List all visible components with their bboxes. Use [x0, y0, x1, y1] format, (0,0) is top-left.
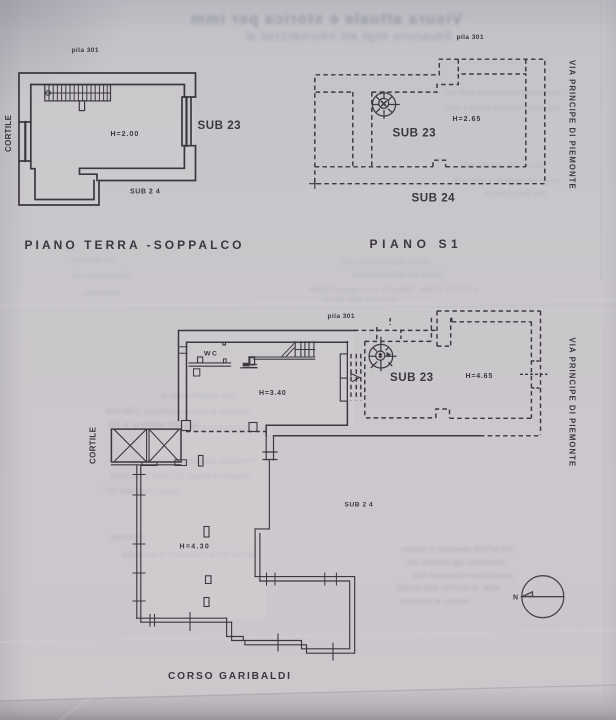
svg-text:aaimmo bili e docum enti simil: aaimmo bili e docum enti simili del — [446, 88, 560, 97]
svg-text:piano terra: piano terra — [83, 288, 120, 297]
svg-text:pila 301: pila 301 — [72, 47, 99, 54]
svg-text:elenco degli immobili e del: elenco degli immobili e del — [342, 257, 430, 266]
svg-text:dati della richiesta: dati della richiesta — [484, 189, 545, 198]
svg-text:catasto dei fabbricati urbani: catasto dei fabbricati urbani — [353, 270, 445, 279]
svg-text:pila 301: pila 301 — [457, 34, 484, 41]
svg-text:H=4.30: H=4.30 — [180, 543, 211, 550]
svg-text:CORTILE: CORTILE — [4, 114, 13, 152]
svg-text:H=4.65: H=4.65 — [466, 373, 494, 380]
svg-text:N: N — [513, 595, 518, 602]
svg-text:WC: WC — [204, 351, 219, 358]
svg-text:CORSO GARIBALDI: CORSO GARIBALDI — [168, 671, 292, 682]
svg-text:pila 301: pila 301 — [328, 313, 355, 320]
svg-text:SUB 2 4: SUB 2 4 — [130, 189, 160, 196]
svg-text:AMIL SFIENTIBI ANA DIONE: AMIL SFIENTIBI ANA DIONE — [396, 584, 500, 593]
svg-text:Visura attuale e storica per i: Visura attuale e storica per imm — [190, 11, 462, 28]
svg-text:9 19 BUS 10 M31, Tilbfecche 3: 9 19 BUS 10 M31, Tilbfecche 3 to 1 appea… — [310, 285, 478, 294]
svg-text:SUB 23: SUB 23 — [393, 127, 437, 140]
svg-text:M Diresid: M Diresid — [111, 533, 145, 542]
svg-text:H=2.00: H=2.00 — [111, 131, 140, 138]
svg-text:SUB 24: SUB 24 — [412, 192, 456, 205]
svg-text:SUB 23: SUB 23 — [390, 371, 434, 384]
svg-text:Situazione degli atti informat: Situazione degli atti informatizzati al — [246, 31, 452, 43]
svg-text:piano primo sotterraneo dire: piano primo sotterraneo dire — [412, 571, 513, 580]
svg-text:H=3.40: H=3.40 — [259, 390, 287, 397]
svg-text:SUB 23: SUB 23 — [198, 119, 242, 132]
svg-text:situazione degli atti inf: situazione degli atti inf — [323, 295, 398, 304]
svg-text:VIA APION stenosfiel al chiest: VIA APION stenosfiel al chiesto — [401, 545, 513, 554]
svg-text:PIANO S1: PIANO S1 — [370, 237, 463, 251]
svg-text:H=2.65: H=2.65 — [453, 116, 482, 123]
svg-text:CORTILE: CORTILE — [88, 426, 97, 464]
svg-text:SUB 2 4: SUB 2 4 — [345, 502, 374, 509]
svg-text:PIANO TERRA -SOPPALCO: PIANO TERRA -SOPPALCO — [25, 238, 245, 252]
svg-text:VIA PRINCIPE DI PIEMONTE: VIA PRINCIPE DI PIEMONTE — [568, 60, 577, 190]
svg-text:docum enti catastali della: docum enti catastali della — [460, 161, 545, 170]
svg-text:numero di particella: numero di particella — [400, 597, 470, 606]
svg-text:dati derivanti: dati derivanti — [72, 255, 115, 264]
svg-text:riferimento agli immobili urb: riferimento agli immobili urb — [407, 558, 505, 567]
svg-text:VIA PRINCIPE DI PIEMONTE: VIA PRINCIPE DI PIEMONTE — [568, 338, 577, 468]
svg-text:visura numero 20: visura numero 20 — [72, 271, 130, 280]
svg-text:registro immo biliare terreni: registro immo biliare terreni e simil — [445, 103, 560, 112]
